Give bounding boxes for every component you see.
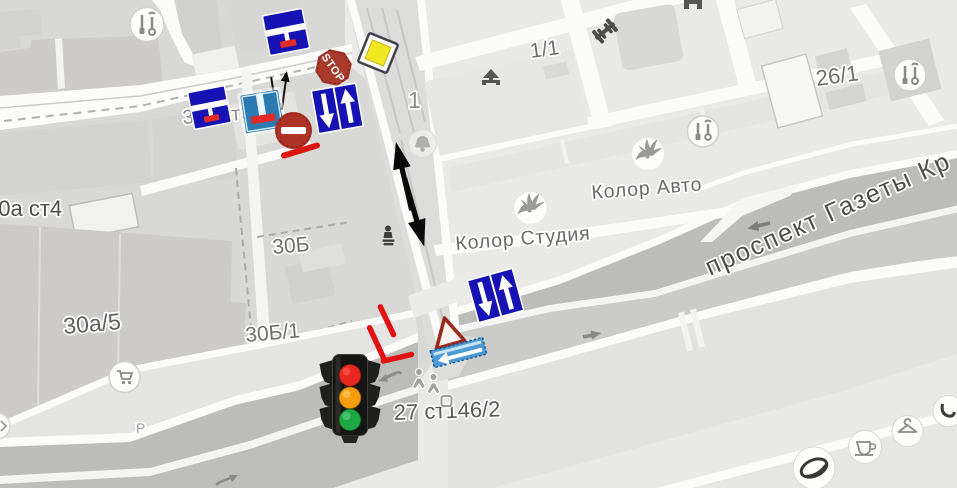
svg-text:30Б/1: 30Б/1 <box>244 319 300 347</box>
svg-text:30а ст4: 30а ст4 <box>0 196 62 221</box>
svg-text:27 ст146/2: 27 ст146/2 <box>393 396 501 425</box>
svg-text:1: 1 <box>408 87 421 113</box>
svg-text:P: P <box>136 420 145 436</box>
svg-text:30Б: 30Б <box>271 233 310 259</box>
svg-text:30а/5: 30а/5 <box>62 308 122 339</box>
svg-text:1/1: 1/1 <box>528 36 560 63</box>
